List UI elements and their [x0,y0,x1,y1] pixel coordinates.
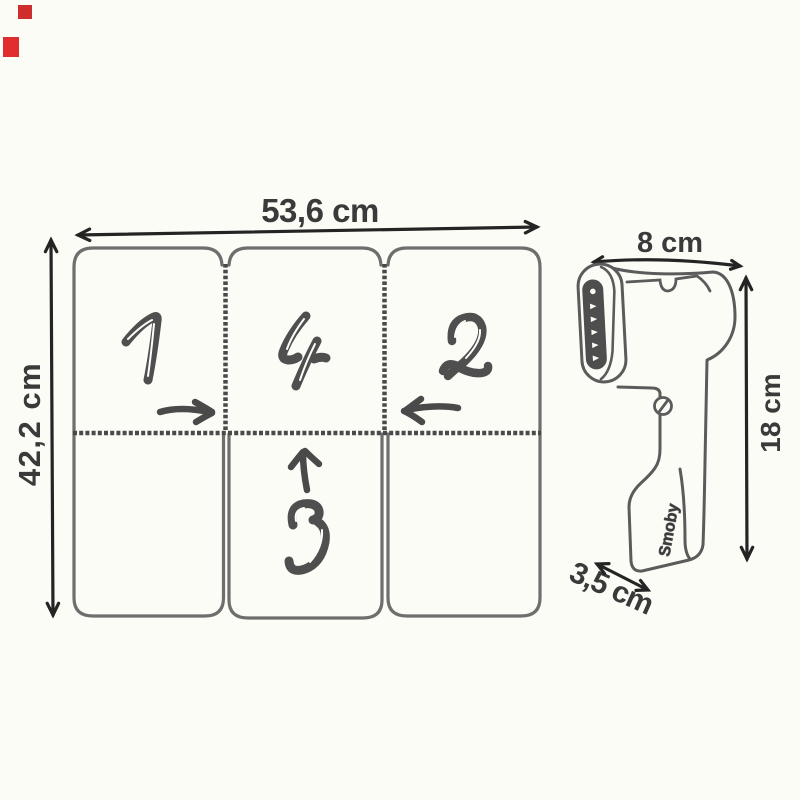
svg-text:18 cm: 18 cm [755,373,786,452]
svg-text:42,2 cm: 42,2 cm [12,362,47,486]
svg-text:53,6 cm: 53,6 cm [261,192,379,229]
svg-text:8 cm: 8 cm [637,227,703,259]
